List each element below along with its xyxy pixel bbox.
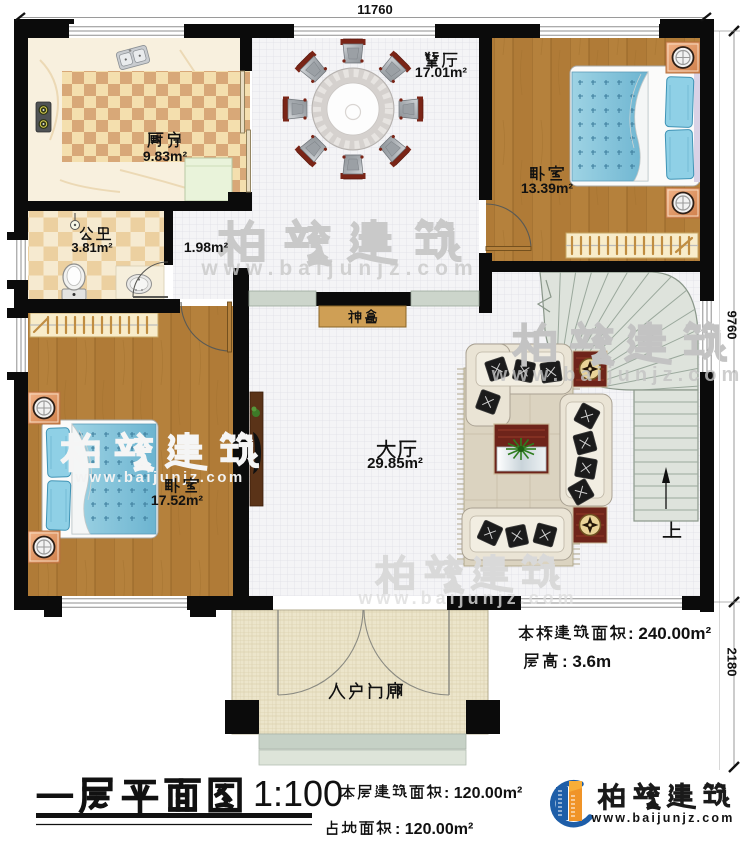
svg-text:: 3.6m: : 3.6m [562,652,611,671]
svg-text:www.baijunjz.com: www.baijunjz.com [590,811,734,825]
svg-text:9760: 9760 [725,311,740,340]
svg-text:1.98m²: 1.98m² [184,239,229,255]
svg-text:13.39m²: 13.39m² [521,180,573,196]
svg-text:9.83m²: 9.83m² [143,148,188,164]
svg-text:www.baijunjz.com: www.baijunjz.com [200,257,478,280]
svg-text:www.baijunjz.com: www.baijunjz.com [357,588,577,608]
svg-text:17.52m²: 17.52m² [151,492,203,508]
svg-text:17.01m²: 17.01m² [415,64,467,80]
svg-text:www.baijunjz.com: www.baijunjz.com [74,469,244,486]
svg-text:2180: 2180 [725,648,740,677]
svg-text:11760: 11760 [357,2,392,17]
svg-text:1:100: 1:100 [253,773,343,814]
svg-text:: 120.00m²: : 120.00m² [395,821,473,838]
svg-text:: 120.00m²: : 120.00m² [444,785,522,802]
svg-text:29.85m²: 29.85m² [367,455,423,472]
svg-text:: 240.00m²: : 240.00m² [628,624,711,643]
svg-text:www.baijunjz.com: www.baijunjz.com [491,364,745,386]
svg-text:3.81m²: 3.81m² [71,240,113,255]
